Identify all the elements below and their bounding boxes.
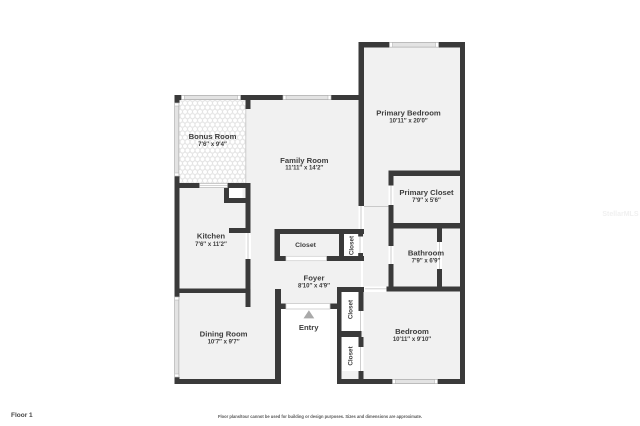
svg-text:7′9″ x 5′6″: 7′9″ x 5′6″ [412,198,441,204]
svg-text:10′11″ x 9′10″: 10′11″ x 9′10″ [393,337,431,343]
svg-text:Closet: Closet [347,299,354,319]
svg-text:Primary Bedroom: Primary Bedroom [376,108,441,117]
svg-text:Floor plans/tour cannot be use: Floor plans/tour cannot be used for buil… [218,414,422,419]
svg-text:10′11″ x 20′0″: 10′11″ x 20′0″ [389,119,427,125]
svg-text:Closet: Closet [347,345,354,365]
svg-text:Family Room: Family Room [280,156,328,165]
svg-text:Primary Closet: Primary Closet [399,188,454,197]
svg-text:Closet: Closet [295,242,317,249]
svg-text:Bonus Room: Bonus Room [189,132,237,141]
svg-text:Bathroom: Bathroom [408,249,444,258]
svg-text:Bedroom: Bedroom [395,327,429,336]
svg-text:Foyer: Foyer [304,274,325,283]
svg-text:10′7″ x 9′7″: 10′7″ x 9′7″ [208,339,240,345]
svg-text:Closet: Closet [349,235,356,255]
svg-text:7′6″ x 11′2″: 7′6″ x 11′2″ [195,242,227,248]
svg-text:7′9″ x 6′9″: 7′9″ x 6′9″ [412,259,441,265]
svg-text:Dining Room: Dining Room [200,330,248,339]
svg-text:StellarMLS: StellarMLS [602,211,639,218]
svg-text:7′6″ x 9′4″: 7′6″ x 9′4″ [198,142,227,148]
svg-text:Floor 1: Floor 1 [11,412,33,419]
svg-text:Kitchen: Kitchen [197,232,225,241]
svg-text:11′11″ x 14′2″: 11′11″ x 14′2″ [285,165,323,171]
svg-text:8′10″ x 4′9″: 8′10″ x 4′9″ [298,283,330,289]
svg-text:Entry: Entry [299,323,319,332]
